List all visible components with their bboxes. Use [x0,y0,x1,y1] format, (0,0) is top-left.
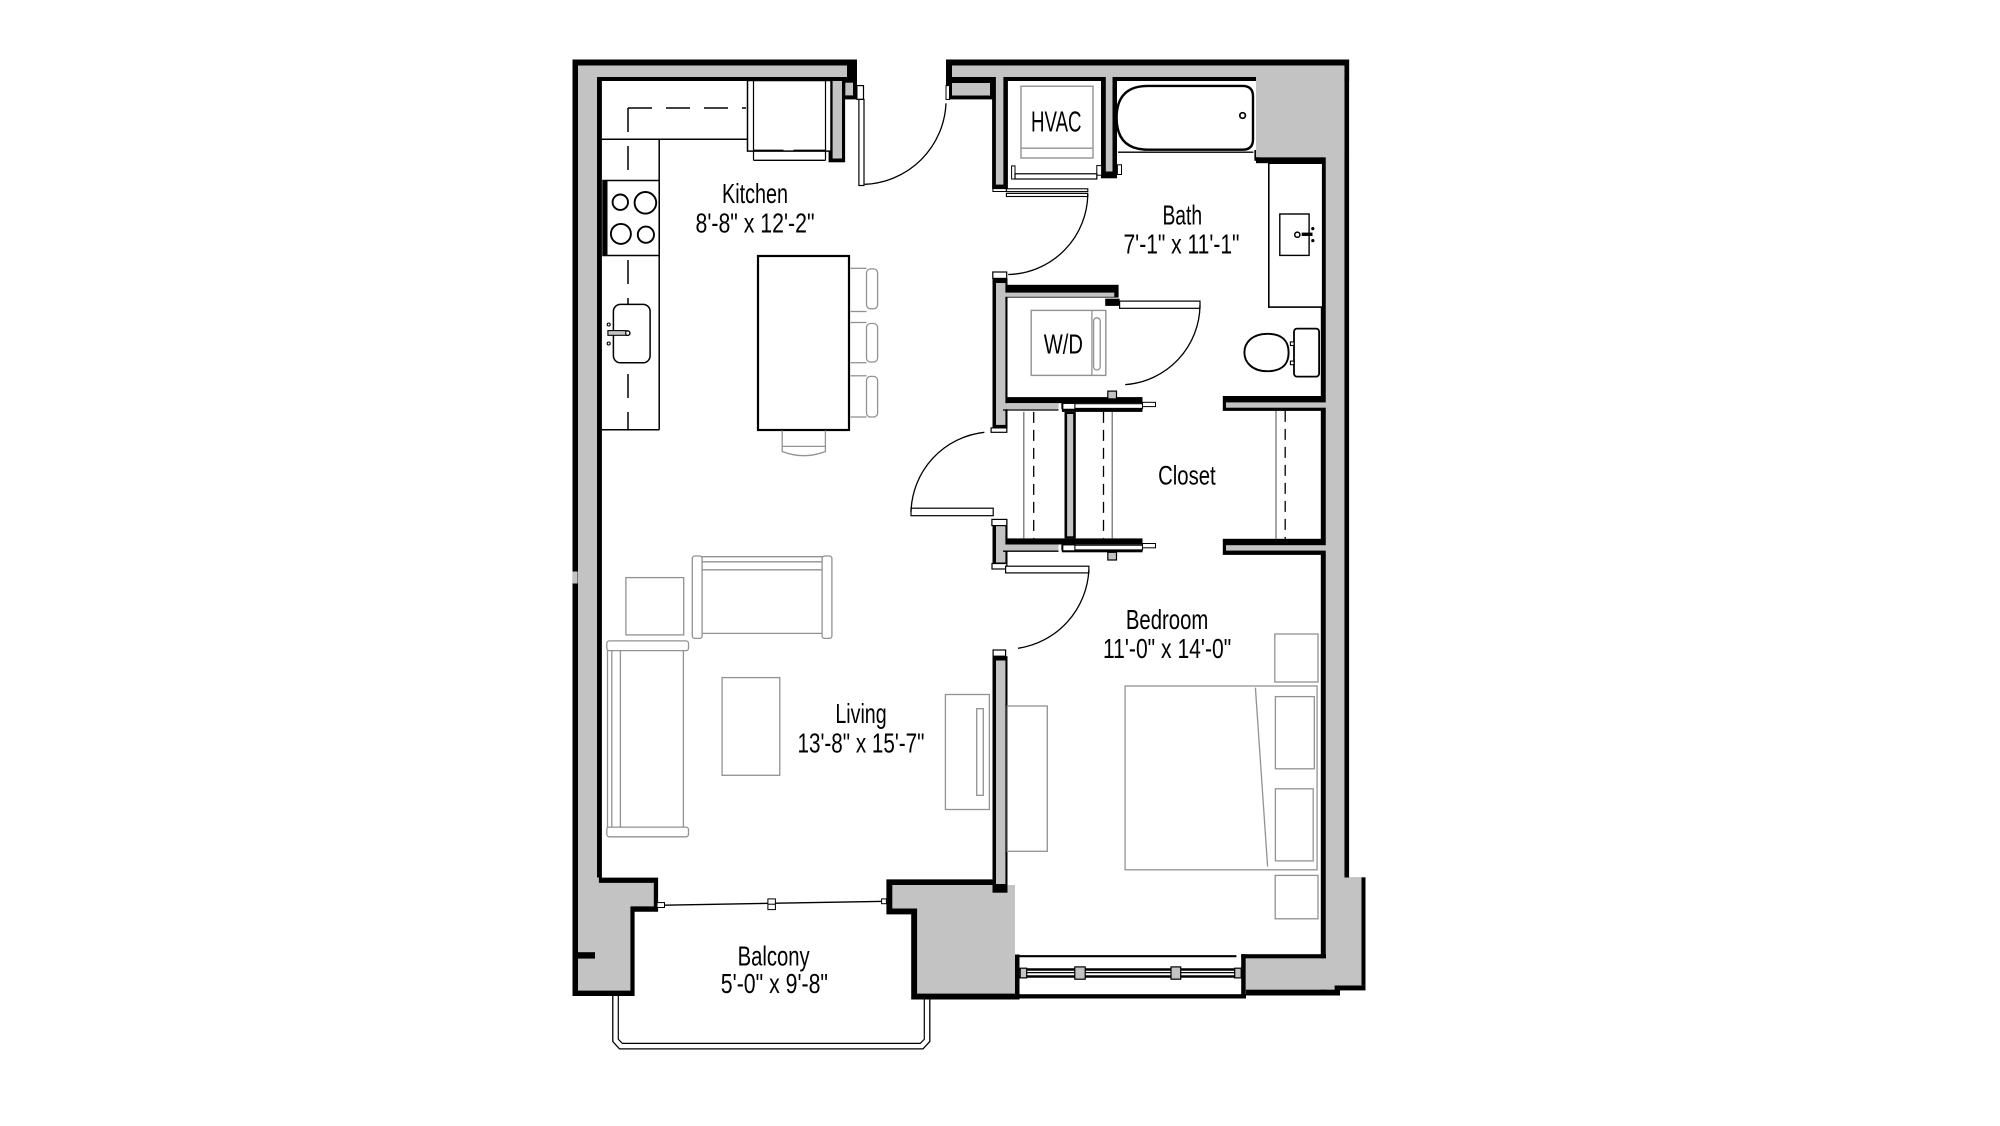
svg-text:7'-1" x 11'-1": 7'-1" x 11'-1" [1124,229,1240,260]
svg-text:Living: Living [835,698,886,729]
svg-text:Bedroom: Bedroom [1126,604,1208,635]
svg-text:Closet: Closet [1158,461,1216,491]
svg-text:5'-0" x 9'-8": 5'-0" x 9'-8" [721,968,828,999]
svg-text:13'-8" x 15'-7": 13'-8" x 15'-7" [798,727,925,758]
svg-text:W/D: W/D [1044,329,1083,360]
svg-text:Bath: Bath [1162,199,1202,230]
svg-text:Kitchen: Kitchen [722,178,788,209]
svg-text:8'-8" x 12'-2": 8'-8" x 12'-2" [696,208,815,239]
svg-text:11'-0" x 14'-0": 11'-0" x 14'-0" [1103,633,1231,664]
svg-text:HVAC: HVAC [1031,107,1082,139]
